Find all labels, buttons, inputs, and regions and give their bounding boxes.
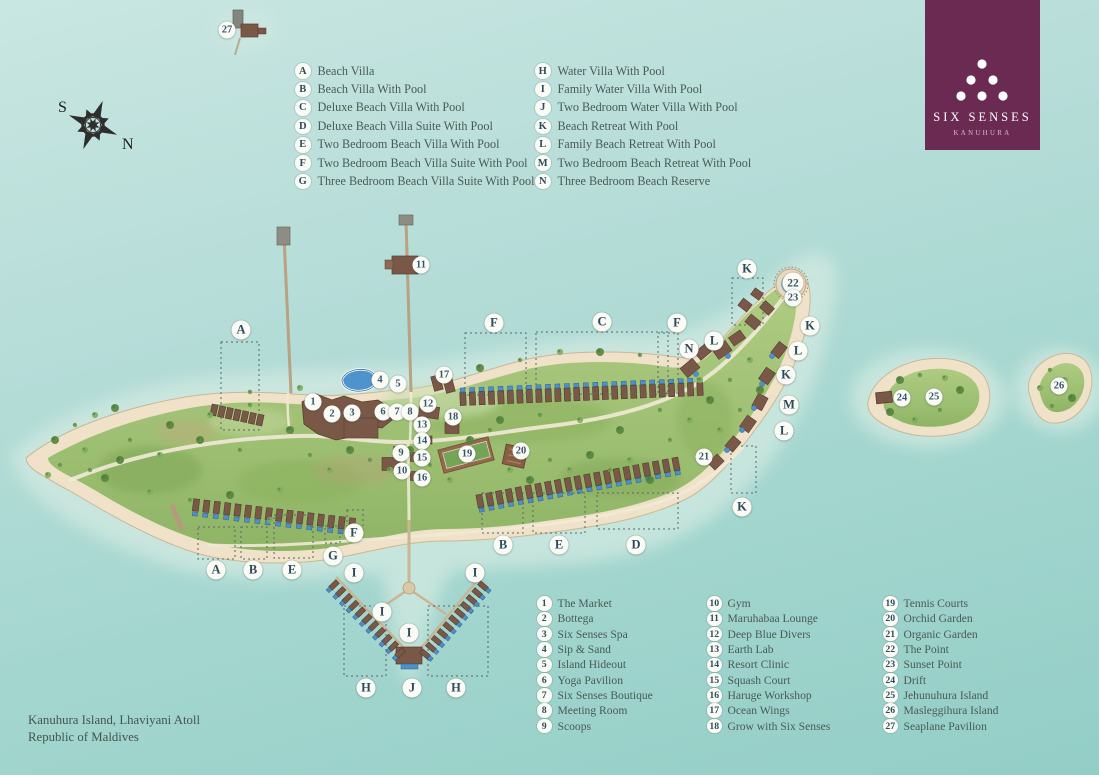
legend-label: Six Senses Spa	[558, 628, 628, 641]
legend-key-badge: 25	[883, 688, 898, 703]
legend-key-badge: 15	[707, 673, 722, 688]
compass-rose	[67, 99, 119, 151]
legend-label: Three Bedroom Beach Villa Suite With Poo…	[318, 174, 535, 189]
legend-key-badge: 27	[883, 719, 898, 734]
legend-label: Sip & Sand	[558, 643, 611, 656]
legend-item-15: 15Squash Court	[707, 672, 830, 687]
legend-item-24: 24Drift	[883, 672, 998, 687]
legend-label: Beach Villa With Pool	[318, 82, 427, 97]
legend-label: Six Senses Boutique	[558, 689, 653, 702]
facility-legend-col2: 10Gym11Maruhabaa Lounge12Deep Blue Diver…	[707, 596, 830, 734]
legend-key-badge: 22	[883, 642, 898, 657]
legend-label: Organic Garden	[904, 628, 978, 641]
legend-label: Island Hideout	[558, 658, 627, 671]
legend-item-18: 18Grow with Six Senses	[707, 718, 830, 733]
legend-label: Three Bedroom Beach Reserve	[558, 174, 711, 189]
legend-item-23: 23Sunset Point	[883, 657, 998, 672]
legend-item-E: ETwo Bedroom Beach Villa With Pool	[295, 136, 535, 154]
legend-key-badge: L	[535, 137, 551, 153]
legend-key-badge: 23	[883, 658, 898, 673]
legend-label: Bottega	[558, 612, 594, 625]
legend-label: Maruhabaa Lounge	[728, 612, 818, 625]
legend-item-A: ABeach Villa	[295, 62, 535, 80]
legend-item-11: 11Maruhabaa Lounge	[707, 611, 830, 626]
legend-label: Drift	[904, 674, 927, 687]
legend-key-badge: 14	[707, 658, 722, 673]
legend-item-14: 14Resort Clinic	[707, 657, 830, 672]
legend-item-M: MTwo Bedroom Beach Retreat With Pool	[535, 154, 751, 172]
legend-key-badge: J	[535, 100, 551, 116]
legend-item-17: 17Ocean Wings	[707, 703, 830, 718]
resort-map: S N AFCFNLKKLKMLKFGBEDABEIIIIHJH12345678…	[0, 0, 1099, 775]
legend-key-badge: 10	[707, 596, 722, 611]
legend-item-7: 7Six Senses Boutique	[537, 688, 653, 703]
legend-key-badge: N	[535, 174, 551, 190]
legend-key-badge: D	[295, 119, 311, 135]
legend-label: Beach Retreat With Pool	[558, 119, 679, 134]
legend-label: Jehunuhura Island	[904, 689, 989, 702]
compass-south-label: S	[58, 99, 67, 116]
legend-key-badge: 4	[537, 642, 552, 657]
legend-key-badge: B	[295, 82, 311, 98]
legend-key-badge: F	[295, 155, 311, 171]
legend-key-badge: 2	[537, 612, 552, 627]
legend-item-26: 26Masleggihura Island	[883, 703, 998, 718]
location-line2: Republic of Maldives	[28, 729, 200, 746]
legend-key-badge: 9	[537, 719, 552, 734]
legend-key-badge: 20	[883, 612, 898, 627]
legend-label: Gym	[728, 597, 751, 610]
legend-label: Deluxe Beach Villa With Pool	[318, 100, 465, 115]
legend-item-27: 27Seaplane Pavilion	[883, 718, 998, 733]
legend-key-badge: 17	[707, 703, 722, 718]
legend-key-badge: 21	[883, 627, 898, 642]
legend-key-badge: 19	[883, 596, 898, 611]
legend-item-21: 21Organic Garden	[883, 627, 998, 642]
legend-label: Beach Villa	[318, 64, 375, 79]
legend-key-badge: 5	[537, 658, 552, 673]
brand-logo: SIX SENSES KANUHURA	[925, 0, 1040, 150]
legend-label: The Point	[904, 643, 949, 656]
legend-item-F: FTwo Bedroom Beach Villa Suite With Pool	[295, 154, 535, 172]
legend-key-badge: 7	[537, 688, 552, 703]
legend-key-badge: 8	[537, 703, 552, 718]
legend-key-badge: 1	[537, 596, 552, 611]
legend-item-19: 19Tennis Courts	[883, 596, 998, 611]
legend-key-badge: C	[295, 100, 311, 116]
legend-label: Deep Blue Divers	[728, 628, 811, 641]
legend-label: Family Water Villa With Pool	[558, 82, 703, 97]
legend-item-16: 16Haruge Workshop	[707, 688, 830, 703]
legend-key-badge: 3	[537, 627, 552, 642]
legend-key-badge: 24	[883, 673, 898, 688]
legend-item-22: 22The Point	[883, 642, 998, 657]
legend-label: Deluxe Beach Villa Suite With Pool	[318, 119, 493, 134]
legend-item-H: HWater Villa With Pool	[535, 62, 751, 80]
legend-key-badge: 16	[707, 688, 722, 703]
legend-label: Scoops	[558, 720, 592, 733]
legend-label: Two Bedroom Beach Villa With Pool	[318, 137, 500, 152]
legend-item-3: 3Six Senses Spa	[537, 627, 653, 642]
legend-label: Family Beach Retreat With Pool	[558, 137, 716, 152]
property-name: KANUHURA	[925, 130, 1040, 137]
legend-item-N: NThree Bedroom Beach Reserve	[535, 172, 751, 190]
legend-item-10: 10Gym	[707, 596, 830, 611]
legend-item-25: 25Jehunuhura Island	[883, 688, 998, 703]
logo-dots-icon	[925, 0, 1040, 110]
legend-label: Two Bedroom Beach Retreat With Pool	[558, 156, 752, 171]
legend-key-badge: G	[295, 174, 311, 190]
legend-item-9: 9Scoops	[537, 718, 653, 733]
legend-item-J: JTwo Bedroom Water Villa With Pool	[535, 99, 751, 117]
legend-key-badge: 6	[537, 673, 552, 688]
legend-label: Meeting Room	[558, 704, 628, 717]
villa-legend-col2: HWater Villa With PoolIFamily Water Vill…	[535, 62, 751, 191]
legend-label: Two Bedroom Water Villa With Pool	[558, 100, 738, 115]
location-line1: Kanuhura Island, Lhaviyani Atoll	[28, 712, 200, 729]
compass-north-label: N	[122, 136, 134, 153]
legend-key-badge: 18	[707, 719, 722, 734]
facility-legend-col1: 1The Market2Bottega3Six Senses Spa4Sip &…	[537, 596, 653, 734]
legend-item-B: BBeach Villa With Pool	[295, 80, 535, 98]
legend-key-badge: 11	[707, 612, 722, 627]
legend-key-badge: E	[295, 137, 311, 153]
legend-label: Orchid Garden	[904, 612, 973, 625]
legend-item-I: IFamily Water Villa With Pool	[535, 80, 751, 98]
legend-label: Resort Clinic	[728, 658, 790, 671]
legend-key-badge: I	[535, 82, 551, 98]
legend-key-badge: K	[535, 119, 551, 135]
legend-label: Water Villa With Pool	[558, 64, 665, 79]
legend-item-6: 6Yoga Pavilion	[537, 672, 653, 687]
legend-label: Earth Lab	[728, 643, 774, 656]
legend-item-D: DDeluxe Beach Villa Suite With Pool	[295, 117, 535, 135]
legend-label: Grow with Six Senses	[728, 720, 831, 733]
legend-label: Masleggihura Island	[904, 704, 999, 717]
location-caption: Kanuhura Island, Lhaviyani Atoll Republi…	[28, 712, 200, 746]
legend-label: Sunset Point	[904, 658, 962, 671]
legend-label: Two Bedroom Beach Villa Suite With Pool	[318, 156, 528, 171]
legend-label: The Market	[558, 597, 612, 610]
legend-item-4: 4Sip & Sand	[537, 642, 653, 657]
legend-item-12: 12Deep Blue Divers	[707, 627, 830, 642]
legend-key-badge: M	[535, 155, 551, 171]
legend-item-L: LFamily Beach Retreat With Pool	[535, 136, 751, 154]
brand-name: SIX SENSES	[925, 110, 1040, 125]
legend-item-20: 20Orchid Garden	[883, 611, 998, 626]
legend-key-badge: A	[295, 63, 311, 79]
legend-label: Tennis Courts	[904, 597, 969, 610]
legend-label: Ocean Wings	[728, 704, 790, 717]
legend-item-5: 5Island Hideout	[537, 657, 653, 672]
legend-item-C: CDeluxe Beach Villa With Pool	[295, 99, 535, 117]
legend-key-badge: 12	[707, 627, 722, 642]
facility-legend-col3: 19Tennis Courts20Orchid Garden21Organic …	[883, 596, 998, 734]
legend-item-2: 2Bottega	[537, 611, 653, 626]
legend-key-badge: H	[535, 63, 551, 79]
legend-item-13: 13Earth Lab	[707, 642, 830, 657]
villa-legend-col1: ABeach VillaBBeach Villa With PoolCDelux…	[295, 62, 535, 191]
legend-label: Haruge Workshop	[728, 689, 812, 702]
legend-label: Yoga Pavilion	[558, 674, 624, 687]
legend-label: Seaplane Pavilion	[904, 720, 987, 733]
legend-item-G: GThree Bedroom Beach Villa Suite With Po…	[295, 172, 535, 190]
legend-item-K: KBeach Retreat With Pool	[535, 117, 751, 135]
legend-key-badge: 13	[707, 642, 722, 657]
legend-label: Squash Court	[728, 674, 791, 687]
legend-key-badge: 26	[883, 703, 898, 718]
legend-item-1: 1The Market	[537, 596, 653, 611]
legend-item-8: 8Meeting Room	[537, 703, 653, 718]
